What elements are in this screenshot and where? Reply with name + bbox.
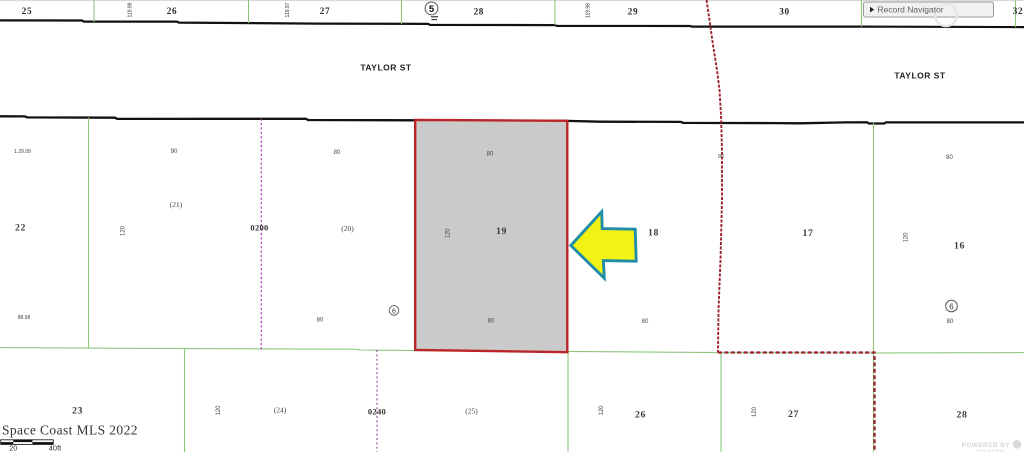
svg-text:29: 29 (628, 6, 638, 16)
svg-text:28: 28 (957, 410, 968, 421)
svg-text:23: 23 (72, 406, 83, 417)
svg-text:6: 6 (949, 302, 954, 311)
svg-text:119.98: 119.98 (586, 3, 592, 18)
svg-text:20: 20 (9, 444, 17, 452)
svg-text:120: 120 (904, 232, 910, 243)
svg-text:19: 19 (496, 226, 507, 237)
svg-text:80: 80 (642, 319, 649, 325)
svg-text:28: 28 (474, 6, 484, 16)
svg-text:Record Navigator: Record Navigator (878, 5, 944, 15)
svg-text:88.98: 88.98 (18, 315, 31, 321)
svg-text:22: 22 (15, 223, 26, 234)
svg-text:120: 120 (752, 406, 758, 417)
svg-text:1.29.99: 1.29.99 (14, 149, 31, 155)
svg-text:26: 26 (635, 410, 646, 421)
svg-text:TAYLOR ST: TAYLOR ST (360, 63, 412, 73)
svg-text:120: 120 (599, 405, 605, 416)
svg-text:17: 17 (803, 228, 814, 239)
svg-text:TAYLOR ST: TAYLOR ST (894, 70, 946, 80)
svg-text:80: 80 (488, 319, 495, 325)
svg-text:80: 80 (946, 155, 953, 161)
svg-text:32: 32 (1013, 6, 1023, 16)
svg-text:16: 16 (954, 241, 965, 252)
svg-text:27: 27 (788, 409, 799, 420)
svg-text:6: 6 (392, 308, 396, 315)
svg-text:120: 120 (121, 225, 127, 236)
svg-text:Space Coast MLS 2022: Space Coast MLS 2022 (2, 422, 138, 437)
svg-text:0200: 0200 (250, 223, 268, 233)
svg-text:120: 120 (216, 405, 222, 416)
svg-text:25: 25 (22, 6, 32, 16)
svg-text:90: 90 (171, 149, 178, 155)
svg-text:120: 120 (446, 228, 452, 239)
svg-text:119.99: 119.99 (128, 2, 134, 17)
svg-text:(25): (25) (465, 407, 478, 416)
svg-text:119.97: 119.97 (285, 2, 291, 17)
svg-text:80: 80 (718, 154, 724, 160)
svg-text:80: 80 (947, 319, 954, 325)
svg-text:(20): (20) (341, 224, 354, 233)
svg-text:0240: 0240 (368, 406, 386, 416)
svg-text:80: 80 (334, 150, 341, 156)
svg-text:POWERED BY: POWERED BY (962, 442, 1011, 449)
svg-text:30: 30 (779, 6, 789, 16)
svg-text:(21): (21) (170, 200, 183, 209)
svg-text:80: 80 (317, 318, 324, 324)
svg-text:5: 5 (429, 4, 435, 15)
svg-text:27: 27 (320, 6, 330, 16)
svg-text:18: 18 (648, 228, 659, 239)
svg-text:80: 80 (487, 152, 494, 158)
svg-text:40ft: 40ft (49, 444, 62, 452)
svg-text:(24): (24) (274, 406, 287, 415)
svg-text:26: 26 (167, 6, 177, 16)
